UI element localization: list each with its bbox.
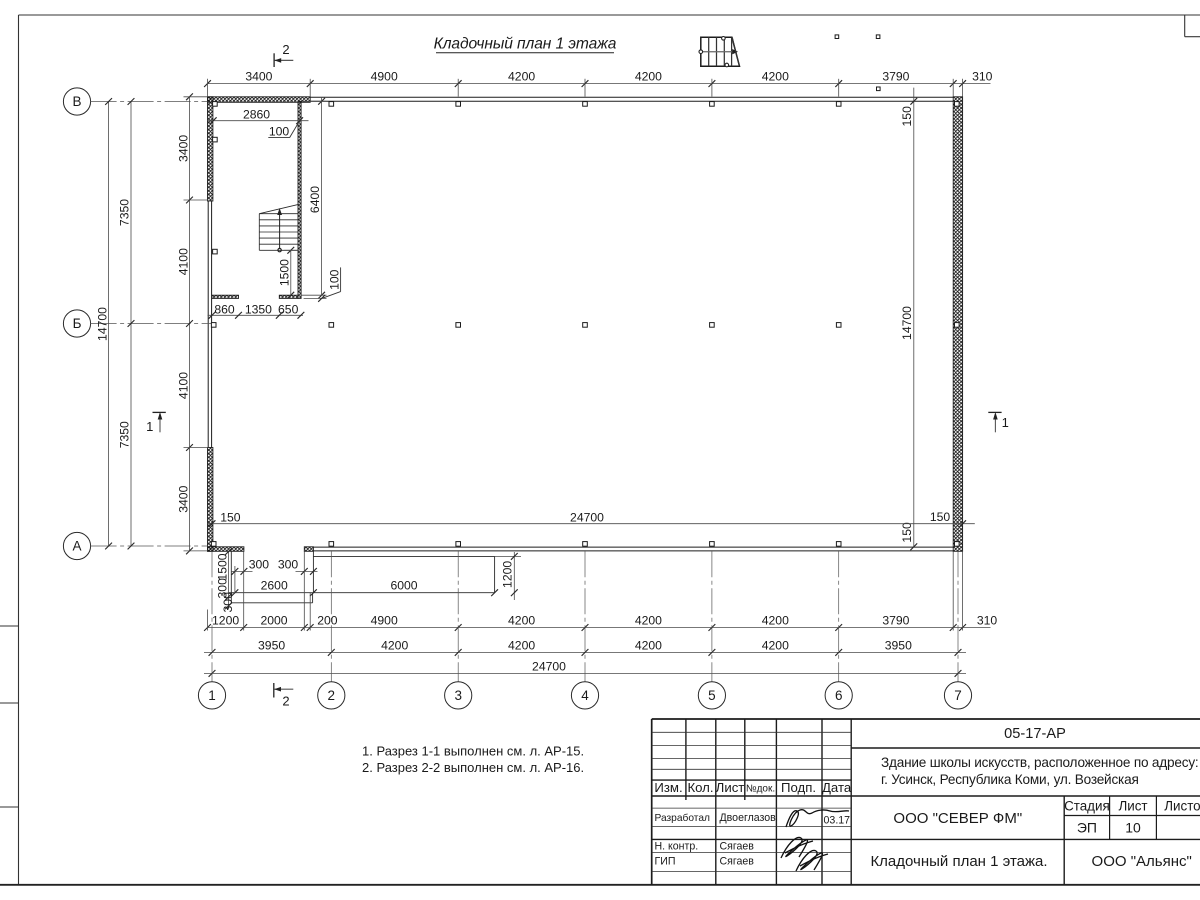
svg-text:Стадия: Стадия [1064,798,1110,813]
svg-text:4200: 4200 [635,70,662,84]
svg-text:Дата: Дата [822,780,852,795]
svg-text:Н. контр.: Н. контр. [655,841,699,853]
svg-text:Лист: Лист [716,780,745,795]
svg-text:№док.: №док. [746,784,775,795]
svg-text:г. Усинск, Республика Коми, ул: г. Усинск, Республика Коми, ул. Возейска… [881,772,1139,787]
svg-text:300: 300 [249,558,270,572]
svg-text:Двоеглазов: Двоеглазов [720,812,777,824]
svg-text:300: 300 [221,592,235,613]
svg-text:2600: 2600 [261,578,288,592]
svg-text:ЭП: ЭП [1077,819,1097,835]
svg-text:Здание школы искусств, располо: Здание школы искусств, расположенное по … [881,755,1199,770]
svg-text:05-17-АР: 05-17-АР [1004,726,1066,742]
svg-text:24700: 24700 [532,660,566,674]
svg-text:03.17: 03.17 [824,814,851,826]
svg-text:4200: 4200 [635,614,662,628]
svg-text:5: 5 [708,688,716,703]
svg-text:4200: 4200 [635,639,662,653]
svg-text:3400: 3400 [176,485,190,512]
svg-text:10: 10 [1125,819,1141,835]
svg-text:6: 6 [835,688,843,703]
svg-text:3950: 3950 [885,639,912,653]
svg-text:3790: 3790 [882,614,909,628]
svg-text:4100: 4100 [176,372,190,399]
svg-text:Кладочный план 1 этажа.: Кладочный план 1 этажа. [870,853,1047,870]
svg-text:3400: 3400 [176,135,190,162]
svg-text:650: 650 [278,302,299,316]
svg-text:Изм.: Изм. [654,780,682,795]
svg-text:1200: 1200 [212,614,239,628]
svg-text:2: 2 [282,693,289,708]
svg-text:4200: 4200 [381,639,408,653]
svg-text:В: В [72,94,81,109]
svg-text:ГИП: ГИП [655,856,676,868]
svg-text:150: 150 [220,510,241,524]
svg-text:1500: 1500 [215,553,229,580]
svg-text:310: 310 [977,614,998,628]
svg-text:100: 100 [328,269,342,290]
svg-text:2000: 2000 [260,614,287,628]
svg-text:200: 200 [317,614,338,628]
svg-text:3400: 3400 [245,70,272,84]
svg-text:4900: 4900 [371,70,398,84]
svg-text:4200: 4200 [762,639,789,653]
svg-text:Б: Б [73,316,82,331]
svg-text:4200: 4200 [508,639,535,653]
svg-text:Подп.: Подп. [781,780,816,795]
svg-text:310: 310 [972,70,993,84]
svg-text:7: 7 [954,688,962,703]
svg-text:7350: 7350 [118,199,132,226]
svg-text:1: 1 [1002,415,1009,430]
svg-text:14700: 14700 [95,307,109,341]
svg-text:150: 150 [930,510,951,524]
svg-text:14700: 14700 [900,306,914,340]
svg-text:Кладочный план 1 этажа: Кладочный план 1 этажа [434,36,617,53]
svg-text:Разработал: Разработал [655,812,711,824]
svg-text:4200: 4200 [508,614,535,628]
svg-text:6400: 6400 [308,186,322,213]
svg-text:860: 860 [214,302,235,316]
svg-text:300: 300 [278,558,299,572]
svg-text:2860: 2860 [243,108,270,122]
svg-text:А: А [72,539,81,554]
svg-text:2: 2 [282,42,289,57]
svg-text:4100: 4100 [176,248,190,275]
svg-text:3950: 3950 [258,639,285,653]
svg-text:Сягаев: Сягаев [720,856,755,868]
svg-text:Лист: Лист [1118,798,1147,813]
svg-text:150: 150 [900,522,914,543]
svg-text:3790: 3790 [882,70,909,84]
svg-text:24700: 24700 [570,510,604,524]
svg-text:ООО "СЕВЕР ФМ": ООО "СЕВЕР ФМ" [893,810,1022,827]
svg-text:100: 100 [269,125,290,139]
svg-text:Листов: Листов [1164,798,1200,813]
svg-text:4200: 4200 [762,70,789,84]
svg-text:4: 4 [581,688,589,703]
svg-text:1200: 1200 [501,561,515,588]
svg-text:4200: 4200 [762,614,789,628]
svg-text:1500: 1500 [277,259,291,286]
svg-text:4900: 4900 [371,614,398,628]
svg-text:1350: 1350 [245,302,272,316]
svg-text:Кол.: Кол. [687,780,713,795]
svg-text:1: 1 [208,688,216,703]
svg-text:7350: 7350 [118,421,132,448]
svg-text:1: 1 [146,419,153,434]
svg-text:3: 3 [454,688,462,703]
svg-text:6000: 6000 [390,578,417,592]
svg-text:150: 150 [900,106,914,127]
svg-text:Сягаев: Сягаев [720,841,755,853]
svg-text:2. Разрез 2-2 выполнен см. л.: 2. Разрез 2-2 выполнен см. л. АР-16. [362,760,584,775]
svg-text:2: 2 [328,688,336,703]
svg-text:1. Разрез 1-1 выполнен см. л.: 1. Разрез 1-1 выполнен см. л. АР-15. [362,743,584,758]
svg-text:ООО "Альянс": ООО "Альянс" [1092,853,1192,870]
svg-text:4200: 4200 [508,70,535,84]
